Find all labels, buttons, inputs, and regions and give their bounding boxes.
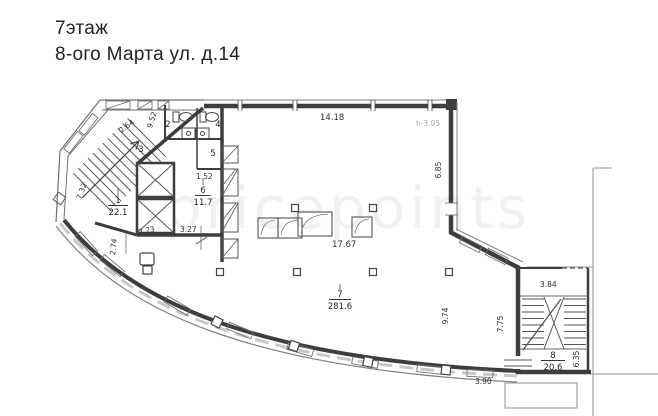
dim-chamfer2: 9.52 [145,110,159,129]
dim-chamfer: 2.64 [117,117,136,135]
dim-right-wall: 6.85 [434,161,443,178]
room-1-number: 1 [115,196,120,206]
room-6-area: 11.7 [194,198,213,208]
screenshot: 7этаж 8-ого Марта ул. д.14 pricepoints [0,0,658,416]
elevator-shafts [137,163,174,233]
room-label-8: 8 20.6 [541,351,565,373]
column-icon [211,316,223,328]
dim-room6-width: 1.52 [196,172,213,181]
dim-core-2: 2.74 [108,238,119,256]
column-icon [441,365,451,375]
floor-plan-svg: pricepoints [0,0,658,416]
dim-hall-bottom: 3.90 [475,377,492,386]
window-diamond-icon [53,192,66,205]
dim-stair8-top: 3.84 [540,280,557,289]
dim-stair8-right: 6.35 [572,350,581,367]
window-segments-top-left [106,101,169,109]
room-7-area: 281.6 [328,302,352,312]
room-label-7: 7 281.6 [328,284,352,312]
column-icon [288,340,299,351]
room-6-number: 6 [200,186,205,196]
room-label-1: 1 22.1 [108,189,128,218]
dim-hall-mid: 17.67 [332,240,356,250]
toilet-icon [173,112,179,122]
column-icon [446,269,453,276]
watermark-text: pricepoints [165,174,531,242]
pier-icon [143,266,152,274]
room-8-number: 8 [550,351,555,361]
room-4-number: 4 [215,120,220,130]
column-icon [370,205,377,212]
dim-room1-left: 7.32 [75,182,89,201]
room-2-number: 2 [165,120,170,130]
ceiling-height-note: h-3.05 [416,119,440,128]
room-8-area: 20.6 [544,363,563,373]
dim-hall-right-wall: 7.75 [496,315,505,332]
column-icon [292,205,299,212]
dim-hall-right: 9.74 [441,307,450,324]
pier-icon [140,253,154,265]
sink-icon [196,128,209,139]
sink-icon [182,128,195,139]
window-segments-chamfer [64,113,98,153]
dim-room6-bottom: 3.27 [180,225,197,234]
column-icon [363,357,374,368]
room-7-number: 7 [337,290,342,300]
room-3-number: 3 [138,145,143,155]
column-icon [217,269,224,276]
dim-top-wall: 14.18 [320,113,344,123]
column-icon [294,269,301,276]
room-1-area: 22.1 [109,208,128,218]
column-icon [370,269,377,276]
room-5-number: 5 [210,149,215,159]
